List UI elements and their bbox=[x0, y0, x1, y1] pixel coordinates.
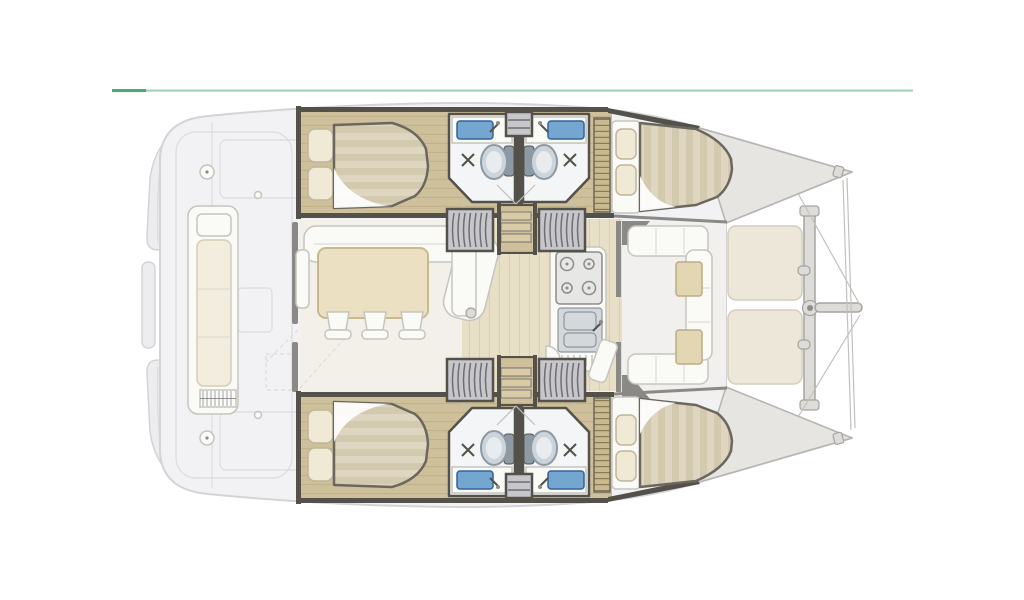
faucet-head bbox=[496, 121, 500, 125]
stair-tread bbox=[501, 223, 531, 231]
hull-outer-wall bbox=[298, 107, 608, 112]
burner-center bbox=[566, 263, 569, 266]
aft-bench-grate bbox=[200, 390, 236, 407]
bed-pillow bbox=[616, 129, 636, 159]
crossbeam-fitting bbox=[798, 266, 810, 275]
accent-rule bbox=[112, 89, 913, 92]
companionway-hatch bbox=[447, 209, 493, 251]
stair-tread bbox=[501, 234, 531, 242]
stair-rail bbox=[533, 203, 537, 255]
faucet-head bbox=[599, 320, 603, 324]
burner-center bbox=[566, 287, 569, 290]
crossbeam-fitting bbox=[798, 340, 810, 349]
sink-bowl bbox=[564, 333, 596, 347]
galley-sink bbox=[558, 308, 603, 352]
dining-chair bbox=[399, 312, 425, 339]
trampoline-panel-starboard bbox=[728, 310, 802, 384]
saloon-island-unit bbox=[452, 242, 476, 316]
floor-plan-canvas bbox=[0, 0, 1024, 600]
aft-bulkhead bbox=[296, 106, 301, 219]
dining-chair bbox=[325, 312, 351, 339]
deck-fitting-center bbox=[205, 436, 208, 439]
companionway-hatch bbox=[539, 209, 585, 251]
forward-cockpit bbox=[622, 221, 726, 399]
stern-center-step bbox=[142, 262, 155, 348]
slatted-locker bbox=[594, 118, 610, 212]
toilet-seat bbox=[536, 151, 552, 173]
side-bench bbox=[296, 250, 309, 308]
deck-fitting-small bbox=[255, 192, 262, 199]
aft-bench-cushion bbox=[197, 240, 231, 386]
deck-fitting-small bbox=[255, 412, 262, 419]
bed-pillow bbox=[308, 167, 333, 200]
forward-bulkhead bbox=[616, 221, 621, 297]
dining-table bbox=[318, 248, 428, 318]
galley-stove bbox=[556, 252, 602, 304]
sink-bowl bbox=[564, 312, 596, 330]
aft-bench-end-pad bbox=[197, 214, 231, 236]
bathroom-sink bbox=[457, 121, 493, 139]
bed-pillow bbox=[308, 129, 333, 162]
cockpit-table bbox=[676, 330, 702, 364]
burner-center bbox=[588, 287, 591, 290]
bow-cleat bbox=[833, 165, 845, 178]
island-end-fitting bbox=[466, 308, 476, 318]
dining-chair bbox=[362, 312, 388, 339]
accent-rule-dark-segment bbox=[112, 89, 146, 92]
center-shelf-column bbox=[506, 112, 532, 136]
trampoline-panel-port bbox=[728, 226, 802, 300]
accent-rule-light-segment bbox=[146, 90, 913, 92]
trampoline-and-rigging bbox=[728, 178, 862, 430]
toilet-seat bbox=[486, 151, 502, 173]
bathroom-sink bbox=[548, 121, 584, 139]
bowsprit bbox=[815, 303, 862, 312]
forestay-chainplate-pin bbox=[807, 305, 813, 311]
stair-rail bbox=[497, 203, 501, 255]
deck-fitting-center bbox=[205, 170, 208, 173]
burner-center bbox=[588, 263, 591, 266]
catamaran-floor-plan bbox=[0, 0, 1024, 600]
stair-tread bbox=[501, 212, 531, 220]
faucet-head bbox=[538, 121, 542, 125]
bed-pillow bbox=[616, 165, 636, 195]
cockpit-table bbox=[676, 262, 702, 296]
saloon-aft-wall bbox=[292, 342, 298, 392]
